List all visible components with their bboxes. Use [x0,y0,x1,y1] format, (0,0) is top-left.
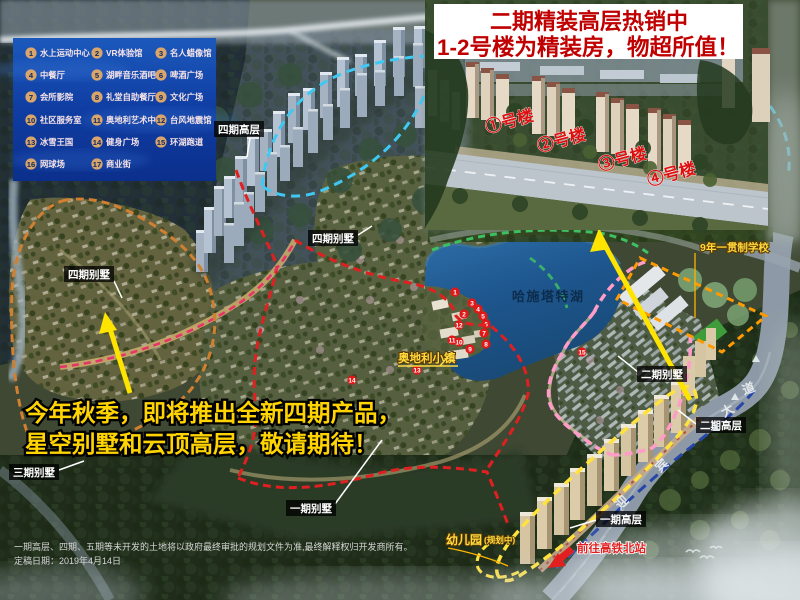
svg-text:四期高层: 四期高层 [218,123,260,136]
svg-text:16: 16 [27,160,35,169]
svg-text:14: 14 [348,378,356,385]
svg-text:1-2号楼为精装房，物超所值！: 1-2号楼为精装房，物超所值！ [437,34,740,60]
svg-text:啤酒广场: 啤酒广场 [170,70,203,80]
svg-text:会所影院: 会所影院 [39,92,74,102]
svg-text:前往高铁北站: 前往高铁北站 [577,541,646,555]
svg-text:VR体验馆: VR体验馆 [106,48,142,58]
svg-text:名人蜡像馆: 名人蜡像馆 [170,48,212,58]
svg-text:星空别墅和云顶高层，敬请期待！: 星空别墅和云顶高层，敬请期待！ [25,430,378,457]
svg-text:三期别墅: 三期别墅 [13,466,55,479]
svg-text:二期高层: 二期高层 [700,419,742,432]
svg-text:2: 2 [95,49,99,58]
svg-text:3: 3 [470,301,474,308]
svg-text:冰雪王国: 冰雪王国 [40,137,73,147]
svg-text:11: 11 [449,338,456,345]
svg-text:7: 7 [29,93,33,102]
svg-text:一期别墅: 一期别墅 [290,502,332,515]
svg-text:四期别墅: 四期别墅 [68,268,110,281]
svg-text:4: 4 [476,307,480,314]
svg-text:台风地震馆: 台风地震馆 [170,115,212,125]
svg-text:(规划中): (规划中) [484,535,515,545]
svg-text:12: 12 [455,323,463,330]
svg-text:12: 12 [157,116,165,125]
svg-text:17: 17 [93,160,101,169]
svg-text:13: 13 [27,138,35,147]
svg-text:9: 9 [468,347,472,354]
svg-text:二期精装高层热销中: 二期精装高层热销中 [490,9,688,34]
svg-text:14: 14 [93,138,102,147]
svg-text:文化广场: 文化广场 [170,92,203,102]
svg-text:社区服务室: 社区服务室 [39,115,82,125]
svg-text:15: 15 [157,138,166,147]
svg-text:商业街: 商业街 [106,159,132,169]
svg-text:5: 5 [481,314,485,321]
svg-text:10: 10 [27,116,35,125]
svg-text:2: 2 [462,312,466,319]
svg-text:13: 13 [413,368,421,375]
svg-text:环湖跑道: 环湖跑道 [170,137,204,147]
svg-text:湖畔音乐酒吧: 湖畔音乐酒吧 [106,70,156,80]
svg-text:9: 9 [159,93,163,102]
svg-text:8: 8 [95,93,99,102]
svg-text:水上运动中心: 水上运动中心 [39,48,90,58]
svg-text:哈施塔特湖: 哈施塔特湖 [512,289,585,304]
svg-text:网球场: 网球场 [40,159,65,169]
svg-text:7: 7 [482,331,486,338]
svg-text:9年一贯制学校: 9年一贯制学校 [700,241,769,254]
svg-text:礼堂自助餐厅: 礼堂自助餐厅 [106,92,156,102]
svg-text:15: 15 [578,350,586,357]
svg-text:6: 6 [159,71,163,80]
svg-text:3: 3 [159,49,163,58]
svg-text:今年秋季，即将推出全新四期产品，: 今年秋季，即将推出全新四期产品， [25,399,401,426]
svg-text:二期别墅: 二期别墅 [641,368,683,381]
svg-text:一期高层、四期、五期等未开发的土地将以政府最终审批的规划文件: 一期高层、四期、五期等未开发的土地将以政府最终审批的规划文件为准,最终解释权归开… [14,541,413,552]
svg-text:幼儿园: 幼儿园 [446,532,482,547]
svg-text:8: 8 [484,342,488,349]
svg-text:1: 1 [453,290,457,297]
svg-text:一期高层: 一期高层 [600,513,642,526]
svg-text:11: 11 [93,116,102,125]
svg-text:中餐厅: 中餐厅 [40,70,66,80]
svg-text:定稿日期：2019年4月14日: 定稿日期：2019年4月14日 [14,555,121,566]
svg-text:健身广场: 健身广场 [106,137,139,147]
svg-text:四期别墅: 四期别墅 [312,232,354,245]
